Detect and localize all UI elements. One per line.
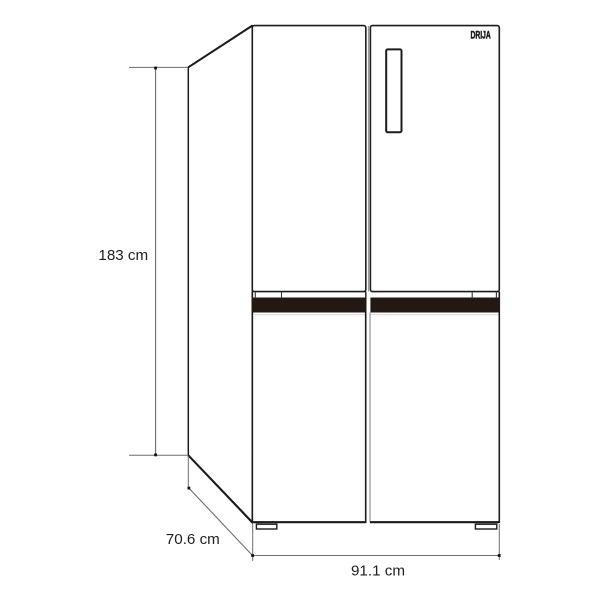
svg-text:183 cm: 183 cm — [98, 247, 148, 264]
svg-text:70.6 cm: 70.6 cm — [166, 531, 220, 548]
svg-text:91.1 cm: 91.1 cm — [351, 563, 405, 580]
svg-text:DRIJA: DRIJA — [470, 29, 491, 41]
